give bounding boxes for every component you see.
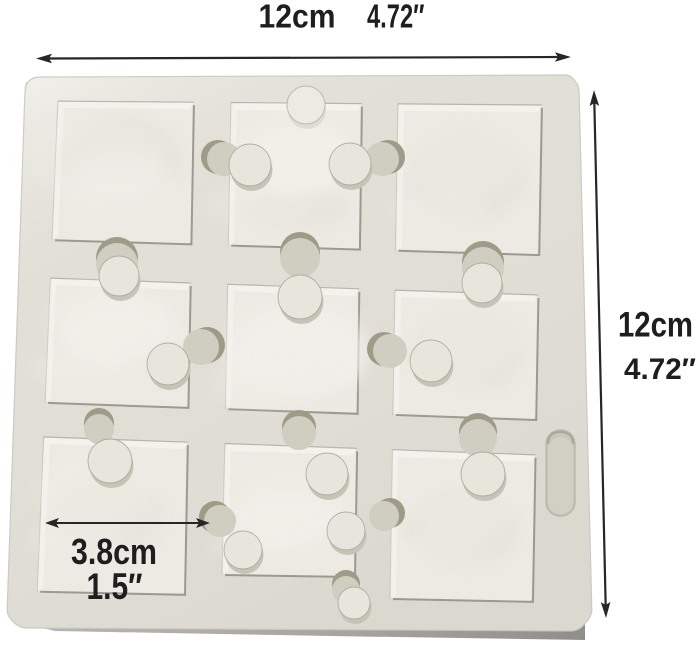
svg-text:12cm: 12cm bbox=[259, 0, 336, 34]
svg-text:4.72″: 4.72″ bbox=[624, 353, 696, 386]
svg-text:12cm: 12cm bbox=[618, 306, 693, 345]
svg-text:4.72″: 4.72″ bbox=[367, 0, 425, 35]
svg-text:1.5″: 1.5″ bbox=[87, 566, 143, 607]
